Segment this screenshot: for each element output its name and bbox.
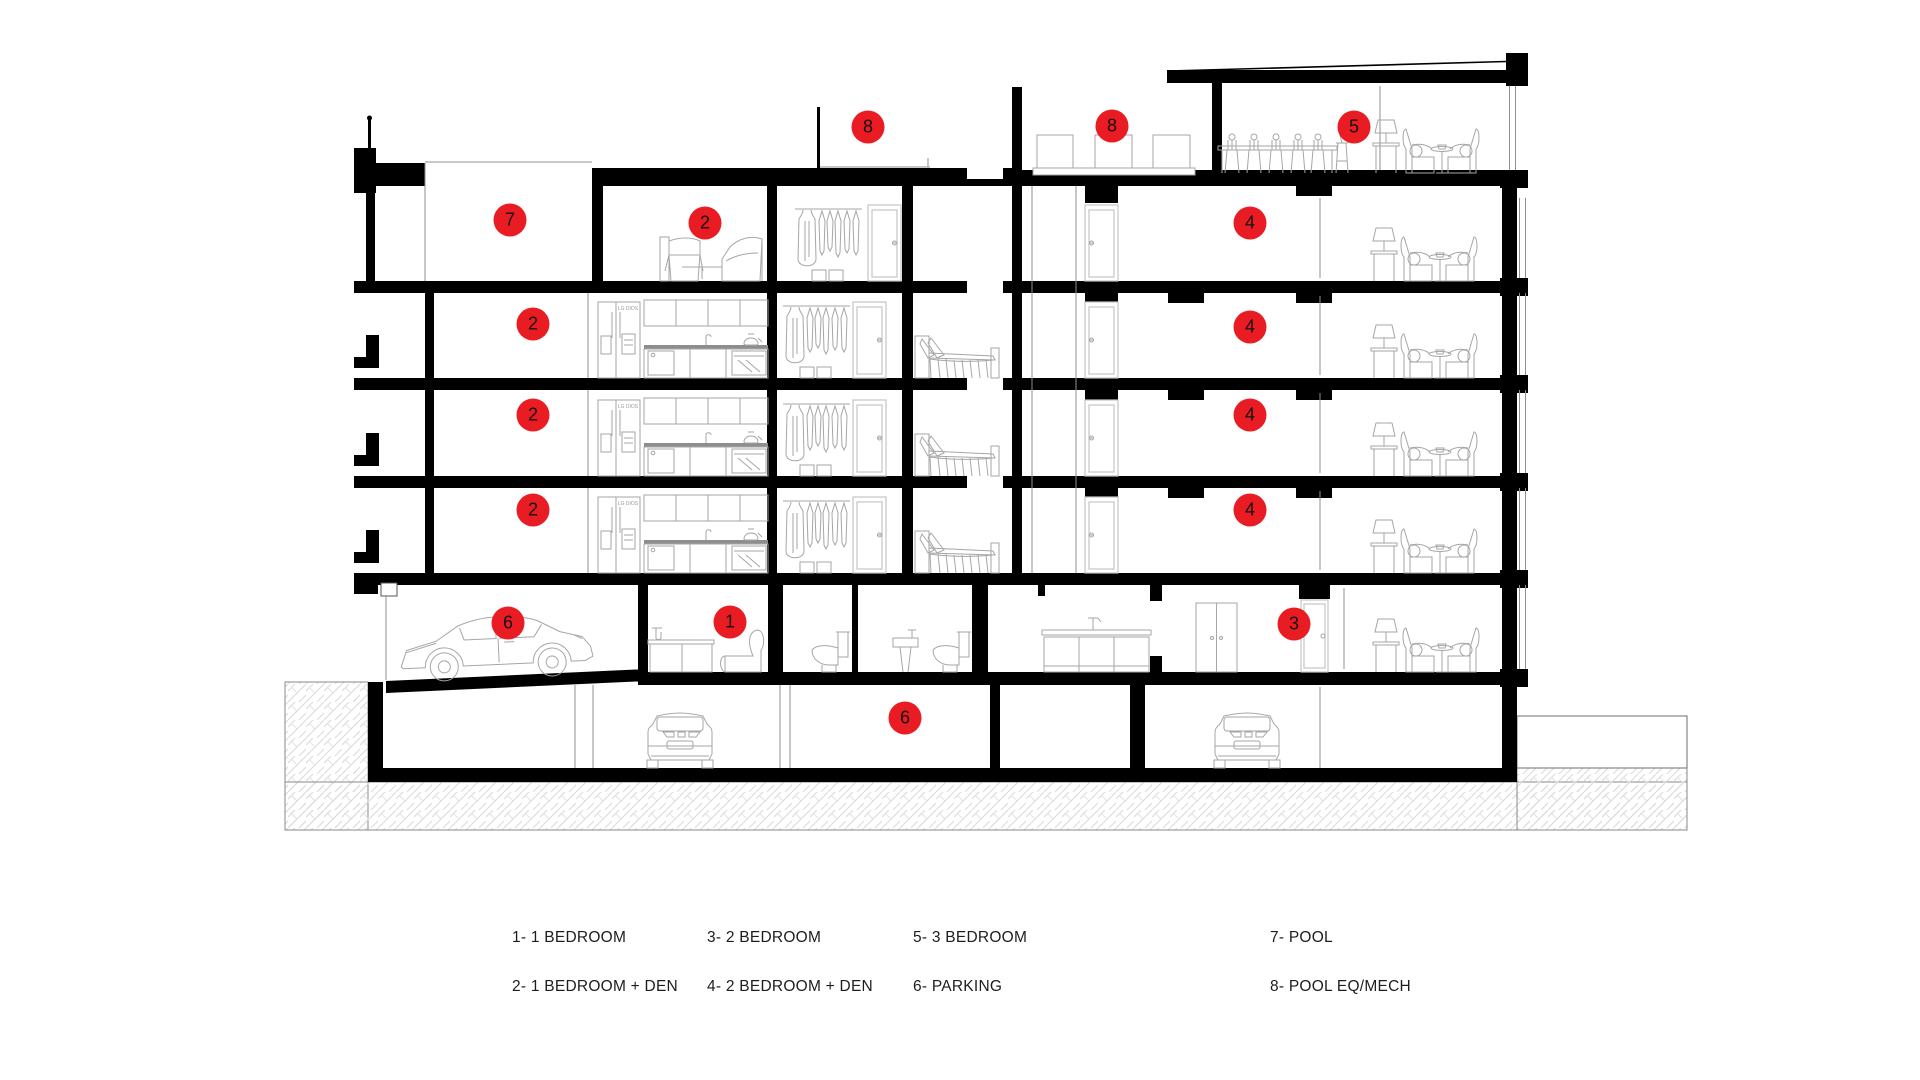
room-marker-2: 2 — [517, 399, 550, 432]
core-wall — [1012, 87, 1022, 573]
room-marker-1: 1 — [714, 606, 747, 639]
sink-icon — [893, 630, 918, 672]
roof-guard-line — [820, 158, 930, 167]
penthouse-roof — [1167, 70, 1508, 83]
garage-ramp-slab — [386, 669, 648, 693]
room-marker-4: 4 — [1234, 399, 1267, 432]
wardrobe-icon — [1196, 603, 1237, 672]
building-section-svg: LG DIOS — [0, 0, 1920, 1080]
room-marker-2: 2 — [517, 494, 550, 527]
room-marker-4: 4 — [1234, 494, 1267, 527]
armchairs-icon — [660, 237, 762, 281]
room-marker-8: 8 — [1096, 110, 1129, 143]
room-marker-2: 2 — [517, 308, 550, 341]
room-marker-7: 7 — [494, 204, 527, 237]
room-marker-8: 8 — [852, 111, 885, 144]
room-marker-2: 2 — [689, 207, 722, 240]
facade-window — [381, 583, 397, 596]
right-sidewalk — [1517, 716, 1687, 768]
pool-parapet — [354, 148, 376, 193]
dining-set-icon — [1218, 134, 1348, 173]
room-marker-5: 5 — [1338, 111, 1371, 144]
room-marker-6: 6 — [492, 607, 525, 640]
balcony-railings — [1520, 198, 1526, 669]
building-section-page: LG DIOS — [0, 0, 1920, 1080]
room-marker-4: 4 — [1234, 311, 1267, 344]
room1-furniture — [648, 628, 764, 672]
kitchen-counter-icon — [1042, 618, 1151, 672]
pool-wall — [592, 168, 603, 281]
room-marker-4: 4 — [1234, 207, 1267, 240]
ground-hatch — [285, 682, 1687, 830]
antenna-icon — [368, 120, 371, 148]
roof-slab — [592, 168, 1012, 186]
roof-mast-icon — [817, 107, 820, 168]
room-marker-3: 3 — [1278, 608, 1311, 641]
room-marker-6: 6 — [889, 702, 922, 735]
